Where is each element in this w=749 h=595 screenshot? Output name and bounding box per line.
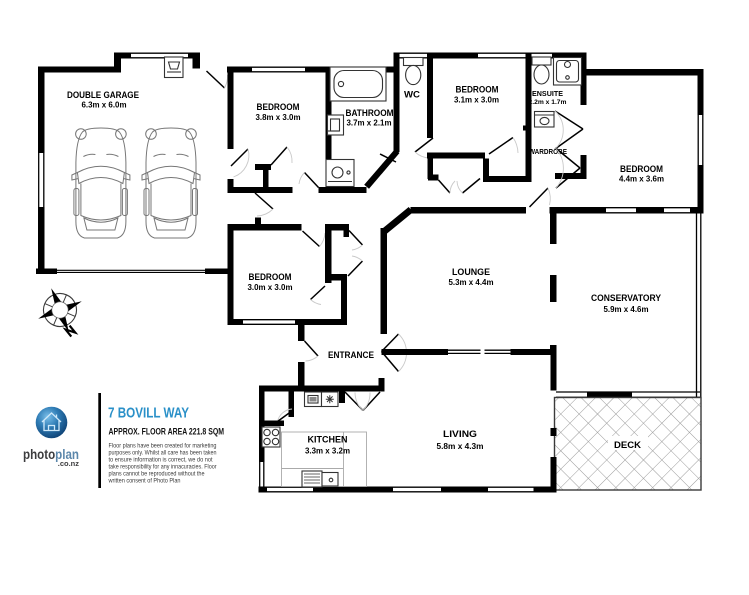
svg-text:to ensure information is corre: to ensure information is correct, we do …: [109, 456, 213, 463]
svg-text:WC: WC: [404, 90, 421, 100]
svg-text:2.2m x 1.7m: 2.2m x 1.7m: [529, 99, 567, 106]
svg-text:7 BOVILL WAY: 7 BOVILL WAY: [108, 405, 189, 422]
svg-text:take responsibility for any in: take responsibility for any innacuracies…: [109, 463, 218, 470]
svg-text:plans cannot be reproduced wit: plans cannot be reproduced without the: [109, 471, 205, 478]
svg-text:3.0m x 3.0m: 3.0m x 3.0m: [248, 282, 293, 292]
svg-text:BEDROOM: BEDROOM: [257, 102, 300, 112]
svg-text:BATHROOM: BATHROOM: [346, 108, 394, 118]
svg-text:3.8m x 3.0m: 3.8m x 3.0m: [256, 112, 301, 122]
svg-text:5.8m x 4.3m: 5.8m x 4.3m: [437, 441, 484, 451]
svg-text:CONSERVATORY: CONSERVATORY: [591, 293, 661, 303]
svg-text:5.9m x 4.6m: 5.9m x 4.6m: [604, 304, 649, 314]
svg-text:written consent of Photo Plan: written consent of Photo Plan: [108, 478, 181, 485]
svg-text:ENSUITE: ENSUITE: [532, 91, 563, 98]
svg-text:6.3m x 6.0m: 6.3m x 6.0m: [82, 99, 127, 109]
svg-text:5.3m x 4.4m: 5.3m x 4.4m: [449, 277, 494, 287]
svg-text:DECK: DECK: [614, 440, 642, 450]
svg-text:KITCHEN: KITCHEN: [308, 435, 348, 445]
svg-text:4.4m x 3.6m: 4.4m x 3.6m: [619, 173, 664, 183]
svg-text:APPROX. FLOOR AREA 221.8 SQM: APPROX. FLOOR AREA 221.8 SQM: [109, 427, 225, 437]
svg-text:purposes only. Whilst all care: purposes only. Whilst all care has been …: [109, 449, 217, 456]
svg-text:.co.nz: .co.nz: [58, 459, 80, 468]
svg-text:3.3m x 3.2m: 3.3m x 3.2m: [305, 445, 350, 455]
svg-text:BEDROOM: BEDROOM: [249, 272, 292, 282]
svg-text:Floor plans have been created: Floor plans have been created for market…: [109, 442, 217, 449]
svg-text:3.1m x 3.0m: 3.1m x 3.0m: [454, 94, 499, 104]
svg-text:LIVING: LIVING: [443, 429, 477, 439]
svg-text:ENTRANCE: ENTRANCE: [328, 350, 374, 360]
svg-text:BEDROOM: BEDROOM: [456, 85, 499, 95]
svg-text:3.7m x 2.1m: 3.7m x 2.1m: [347, 118, 392, 128]
svg-text:LOUNGE: LOUNGE: [452, 267, 490, 277]
